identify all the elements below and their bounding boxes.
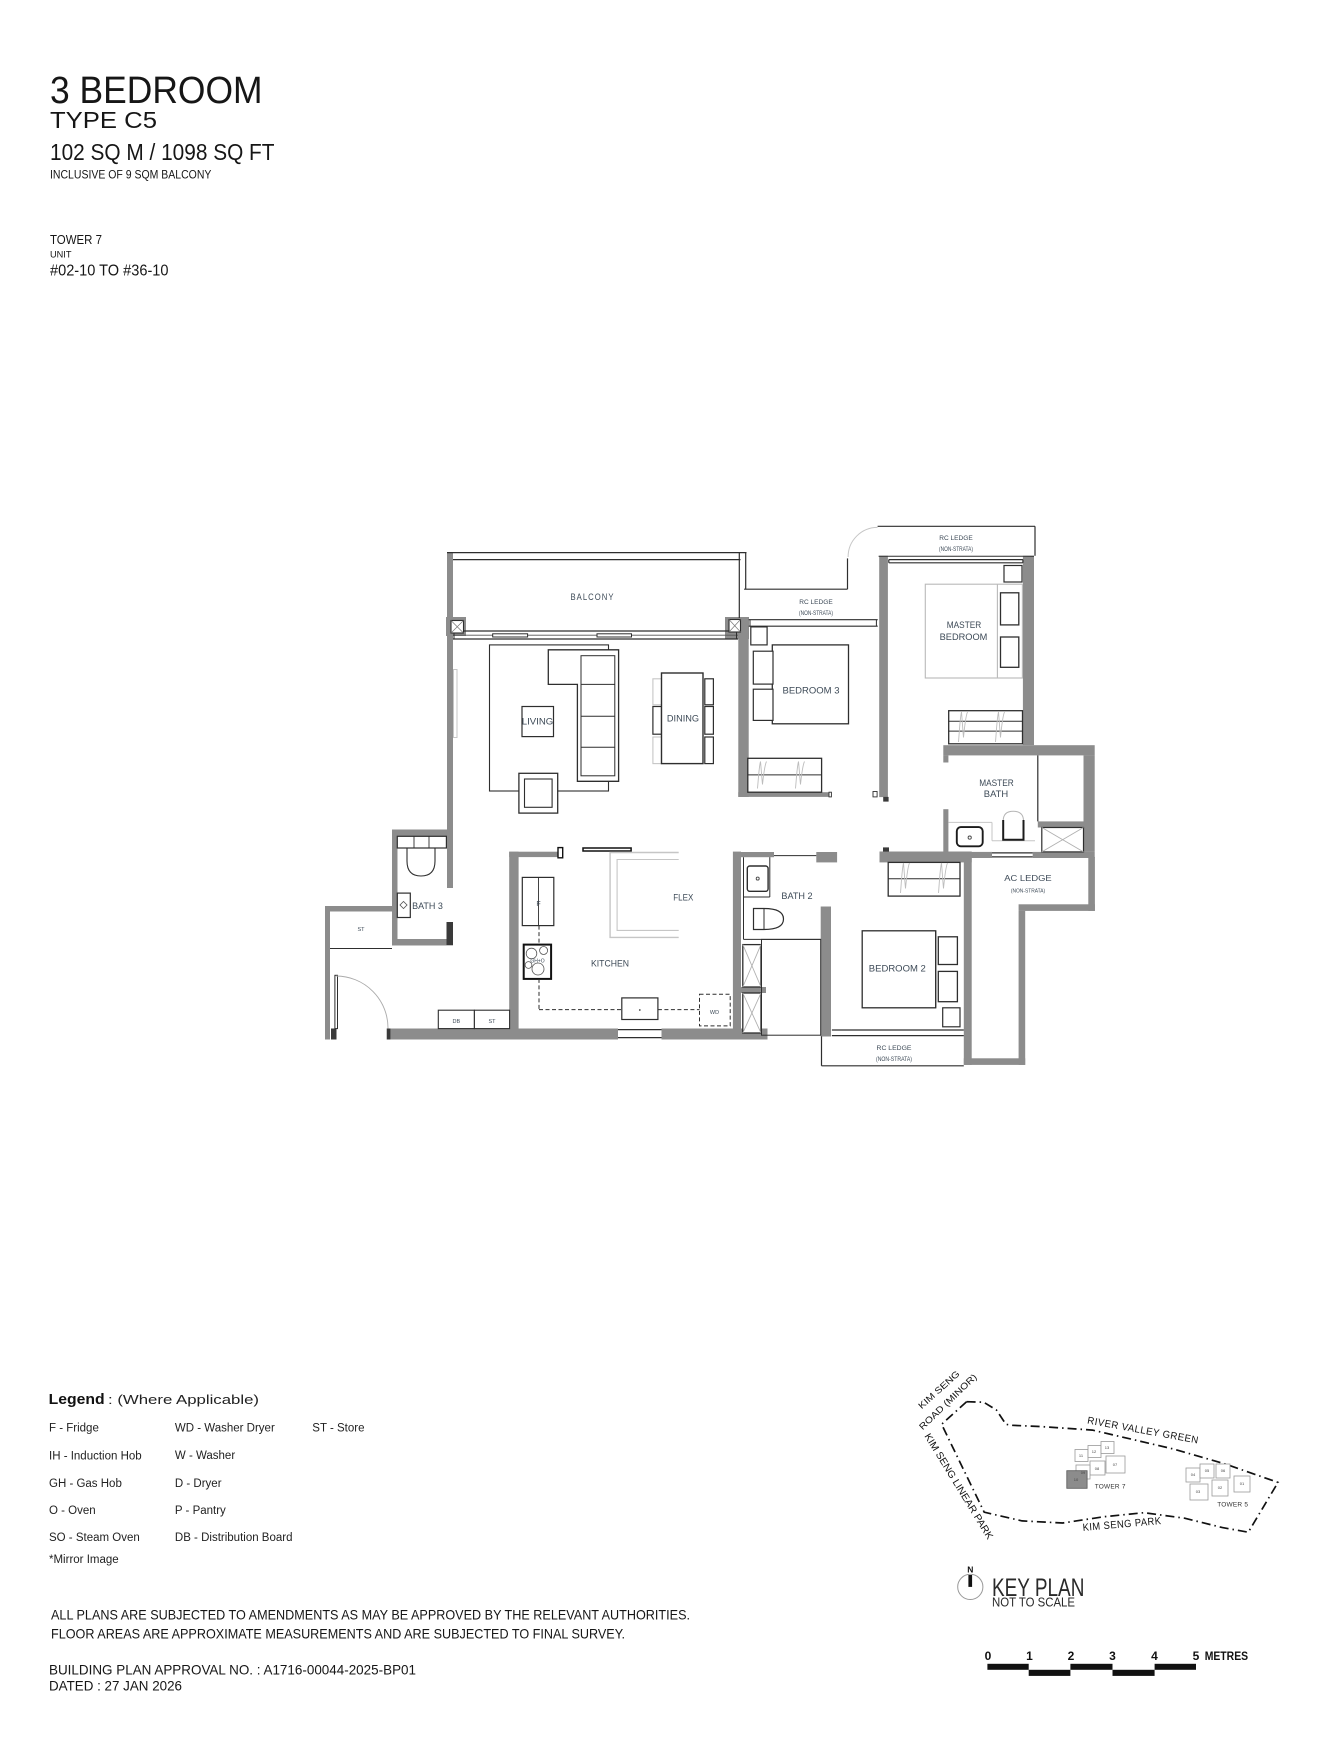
svg-text:03: 03	[1196, 1489, 1201, 1494]
svg-text:01: 01	[1240, 1481, 1245, 1486]
svg-text:KIM SENG LINEAR PARK: KIM SENG LINEAR PARK	[922, 1432, 995, 1542]
svg-text:DATED : 27 JAN 2026: DATED : 27 JAN 2026	[49, 1677, 182, 1693]
svg-text:WD - Washer Dryer: WD - Washer Dryer	[175, 1423, 275, 1435]
svg-text:10: 10	[1074, 1477, 1079, 1482]
svg-text:#02-10 TO #36-10: #02-10 TO #36-10	[50, 263, 169, 280]
svg-text:WD: WD	[710, 1010, 719, 1016]
svg-text:GH+O: GH+O	[530, 959, 544, 965]
svg-text:W - Washer: W - Washer	[175, 1450, 235, 1462]
svg-text:TOWER 7: TOWER 7	[50, 233, 102, 247]
svg-text:08: 08	[1095, 1466, 1100, 1471]
svg-text:DINING: DINING	[667, 714, 699, 725]
svg-text:TOWER 5: TOWER 5	[1217, 1502, 1248, 1509]
svg-text:INCLUSIVE OF 9 SQM BALCONY: INCLUSIVE OF 9 SQM BALCONY	[50, 168, 211, 182]
svg-text:(NON-STRATA): (NON-STRATA)	[876, 1056, 912, 1063]
svg-text:KITCHEN: KITCHEN	[591, 959, 629, 969]
svg-text:N: N	[967, 1565, 973, 1575]
svg-text:MASTER: MASTER	[947, 620, 982, 631]
svg-text:SO - Steam Oven: SO - Steam Oven	[49, 1532, 140, 1544]
svg-text:Legend: Legend	[49, 1391, 105, 1408]
svg-text:ST: ST	[357, 927, 365, 933]
svg-text:RC LEDGE: RC LEDGE	[799, 599, 833, 606]
svg-text:LIVING: LIVING	[522, 717, 554, 728]
svg-text:BEDROOM 2: BEDROOM 2	[869, 964, 926, 975]
svg-text:13: 13	[1105, 1445, 1110, 1450]
svg-text:BATH 3: BATH 3	[412, 901, 443, 911]
svg-text:4: 4	[1151, 1649, 1158, 1663]
svg-text:BATH: BATH	[984, 789, 1008, 799]
svg-text:BATH 2: BATH 2	[781, 891, 812, 901]
svg-text:MASTER: MASTER	[979, 778, 1014, 788]
svg-text:05: 05	[1205, 1468, 1210, 1473]
svg-text:*Mirror Image: *Mirror Image	[49, 1554, 119, 1566]
svg-text:0: 0	[985, 1649, 992, 1663]
svg-text:F - Fridge: F - Fridge	[49, 1423, 99, 1435]
svg-text:F: F	[536, 901, 540, 908]
svg-text:5: 5	[1193, 1649, 1200, 1663]
svg-text:3: 3	[1109, 1649, 1116, 1663]
svg-text:DB: DB	[452, 1019, 460, 1025]
svg-text:RC LEDGE: RC LEDGE	[877, 1045, 912, 1052]
svg-text:TYPE C5: TYPE C5	[50, 107, 157, 133]
svg-text:ST: ST	[488, 1019, 496, 1025]
svg-text:3 BEDROOM: 3 BEDROOM	[50, 70, 263, 112]
svg-text:09: 09	[1081, 1470, 1086, 1475]
svg-text:O - Oven: O - Oven	[49, 1505, 96, 1517]
svg-text:BEDROOM: BEDROOM	[940, 632, 988, 643]
svg-text:12: 12	[1092, 1449, 1097, 1454]
svg-text:ALL PLANS ARE SUBJECTED TO AME: ALL PLANS ARE SUBJECTED TO AMENDMENTS AS…	[51, 1607, 690, 1623]
svg-text:(NON-STRATA): (NON-STRATA)	[799, 610, 833, 617]
svg-text:1: 1	[1026, 1649, 1033, 1663]
svg-text:2: 2	[1068, 1649, 1075, 1663]
svg-text:P - Pantry: P - Pantry	[175, 1505, 226, 1517]
svg-text:METRES: METRES	[1205, 1649, 1248, 1663]
svg-text:07: 07	[1113, 1462, 1118, 1467]
svg-text:TOWER 7: TOWER 7	[1095, 1483, 1126, 1490]
svg-text:06: 06	[1221, 1468, 1226, 1473]
svg-text:BEDROOM 3: BEDROOM 3	[783, 686, 840, 697]
svg-text:D - Dryer: D - Dryer	[175, 1478, 222, 1490]
svg-text:DB - Distribution Board: DB - Distribution Board	[175, 1532, 293, 1544]
svg-text:02: 02	[1218, 1485, 1223, 1490]
svg-text:GH - Gas Hob: GH - Gas Hob	[49, 1478, 122, 1490]
svg-text:(NON-STRATA): (NON-STRATA)	[1011, 888, 1045, 894]
svg-text:FLEX: FLEX	[673, 892, 693, 902]
svg-text:BUILDING PLAN APPROVAL NO. : A: BUILDING PLAN APPROVAL NO. : A1716-00044…	[49, 1662, 416, 1678]
svg-text:(NON-STRATA): (NON-STRATA)	[939, 546, 973, 553]
svg-text:BALCONY: BALCONY	[571, 592, 615, 602]
svg-text:RC LEDGE: RC LEDGE	[939, 535, 973, 542]
svg-text:FLOOR AREAS ARE APPROXIMATE ME: FLOOR AREAS ARE APPROXIMATE MEASUREMENTS…	[51, 1625, 625, 1641]
svg-text:NOT TO SCALE: NOT TO SCALE	[992, 1596, 1075, 1610]
svg-text:102 SQ M / 1098 SQ FT: 102 SQ M / 1098 SQ FT	[50, 139, 275, 165]
svg-text:04: 04	[1191, 1472, 1196, 1477]
svg-text:UNIT: UNIT	[50, 250, 72, 260]
svg-text:ST - Store: ST - Store	[312, 1423, 364, 1435]
svg-text:AC LEDGE: AC LEDGE	[1004, 873, 1052, 883]
svg-text:IH - Induction Hob: IH - Induction Hob	[49, 1451, 142, 1463]
svg-text:: (Where Applicable): : (Where Applicable)	[108, 1393, 259, 1407]
